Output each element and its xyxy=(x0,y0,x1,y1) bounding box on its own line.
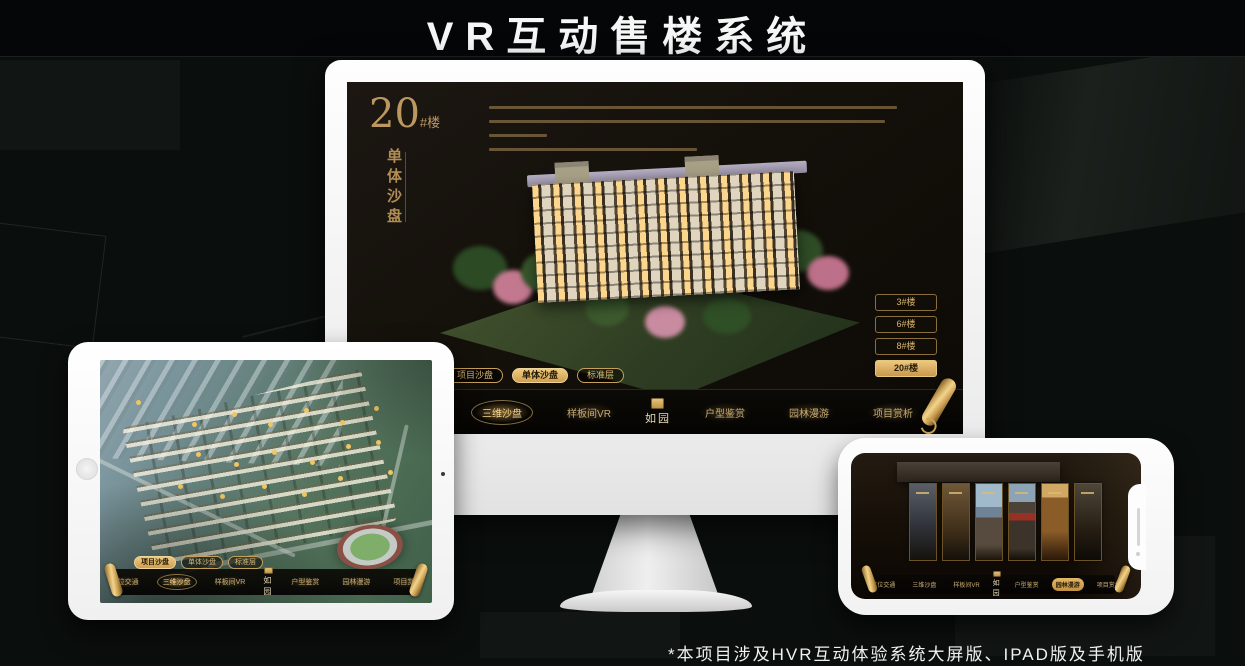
gallery-panel[interactable] xyxy=(1074,483,1102,561)
building-button-6[interactable]: 6#楼 xyxy=(875,316,937,333)
gallery-panel[interactable] xyxy=(975,483,1003,561)
speaker-slot-icon xyxy=(1137,508,1140,546)
brand-seal-icon xyxy=(264,567,273,574)
tab-project-sandbox[interactable]: 项目沙盘 xyxy=(447,368,503,383)
gallery-panel[interactable] xyxy=(942,483,970,561)
nav-garden-roam[interactable]: 园林漫游 xyxy=(779,401,839,424)
tab-standard-floor[interactable]: 标准层 xyxy=(577,368,624,383)
monitor-stand-base xyxy=(560,590,752,612)
nav-floorplans[interactable]: 户型鉴赏 xyxy=(286,575,324,589)
tree xyxy=(703,298,751,334)
building-button-8[interactable]: 8#楼 xyxy=(875,338,937,355)
tab-single-sandbox[interactable]: 单体沙盘 xyxy=(181,556,223,569)
nav-model-room-vr[interactable]: 样板间VR xyxy=(949,578,983,591)
gallery-panels xyxy=(909,483,1102,561)
building-button-3[interactable]: 3#楼 xyxy=(875,294,937,311)
pink-tree xyxy=(645,306,685,338)
building-number: 20 xyxy=(369,91,420,137)
camera-dot-icon xyxy=(1136,552,1140,556)
gallery-panel[interactable] xyxy=(909,483,937,561)
pink-tree xyxy=(807,256,849,290)
footnote: *本项目涉及HVR互动体验系统大屏版、IPAD版及手机版 xyxy=(668,640,1145,665)
nav-project-gallery[interactable]: 项目赏析 xyxy=(863,401,923,424)
page-title: VR互动售楼系统 xyxy=(0,4,1245,62)
nav-garden-roam[interactable]: 园林漫游 xyxy=(337,575,375,589)
pavilion-beam xyxy=(897,462,1059,482)
tab-project-sandbox[interactable]: 项目沙盘 xyxy=(134,556,176,569)
bg-aerial-road xyxy=(970,42,1245,256)
tablet-app-screen: 项目沙盘 单体沙盘 标准层 区位交通 三维沙盘 样板间VR 如园 户型鉴赏 园林… xyxy=(100,360,432,603)
nav-3d-sandbox[interactable]: 三维沙盘 xyxy=(157,574,197,590)
nav-model-room-vr[interactable]: 样板间VR xyxy=(210,575,251,589)
brand-name: 如园 xyxy=(993,578,1002,598)
building-button-20[interactable]: 20#楼 xyxy=(875,360,937,377)
description-lines xyxy=(489,106,909,162)
brand-name: 如园 xyxy=(645,410,671,426)
phone-device: 区位交通 三维沙盘 样板间VR 如园 户型鉴赏 园林漫游 项目赏析 xyxy=(838,438,1174,615)
brand-logo[interactable]: 如园 xyxy=(993,571,1002,598)
building-model[interactable] xyxy=(532,171,800,303)
building-subtitle: 单体沙盘 xyxy=(383,148,404,228)
nav-model-room-vr[interactable]: 样板间VR xyxy=(557,401,621,424)
home-button[interactable] xyxy=(76,458,98,480)
camera-dot-icon xyxy=(441,472,445,476)
bg-texture xyxy=(480,612,680,658)
phone-app-screen: 区位交通 三维沙盘 样板间VR 如园 户型鉴赏 园林漫游 项目赏析 xyxy=(851,453,1141,599)
tablet-sandbox-tabs: 项目沙盘 单体沙盘 标准层 xyxy=(134,556,263,569)
brand-logo[interactable]: 如园 xyxy=(263,567,273,597)
building-selector: 3#楼 6#楼 8#楼 20#楼 xyxy=(875,294,937,377)
nav-garden-roam[interactable]: 园林漫游 xyxy=(1052,578,1084,591)
nav-floorplans[interactable]: 户型鉴赏 xyxy=(695,401,755,424)
nav-floorplans[interactable]: 户型鉴赏 xyxy=(1011,578,1043,591)
tablet-navbar: 区位交通 三维沙盘 样板间VR 如园 户型鉴赏 园林漫游 项目赏析 xyxy=(114,569,418,595)
tab-single-sandbox[interactable]: 单体沙盘 xyxy=(512,368,568,383)
heading-rule xyxy=(405,152,406,222)
gallery-panel[interactable] xyxy=(1008,483,1036,561)
nav-3d-sandbox[interactable]: 三维沙盘 xyxy=(471,400,533,425)
page: VR互动售楼系统 20#楼 单体沙盘 xyxy=(0,0,1245,666)
nav-3d-sandbox[interactable]: 三维沙盘 xyxy=(908,578,940,591)
building-heading: 20#楼 xyxy=(369,94,440,134)
phone-notch xyxy=(1128,484,1146,570)
bg-map-frame xyxy=(0,221,106,349)
building-number-suffix: #楼 xyxy=(420,115,440,130)
gallery-panel[interactable] xyxy=(1041,483,1069,561)
brand-seal-icon xyxy=(651,398,664,409)
brand-logo[interactable]: 如园 xyxy=(645,398,671,426)
phone-navbar: 区位交通 三维沙盘 样板间VR 如园 户型鉴赏 园林漫游 项目赏析 xyxy=(877,575,1115,594)
monitor-stand xyxy=(585,512,725,598)
bg-texture xyxy=(0,60,180,150)
tablet-device: 项目沙盘 单体沙盘 标准层 区位交通 三维沙盘 样板间VR 如园 户型鉴赏 园林… xyxy=(68,342,454,620)
brand-name: 如园 xyxy=(263,575,273,597)
brand-seal-icon xyxy=(993,571,1001,577)
tab-standard-floor[interactable]: 标准层 xyxy=(228,556,263,569)
roof-dormer xyxy=(554,161,589,184)
sandbox-tabs: 项目沙盘 单体沙盘 标准层 xyxy=(447,368,624,383)
